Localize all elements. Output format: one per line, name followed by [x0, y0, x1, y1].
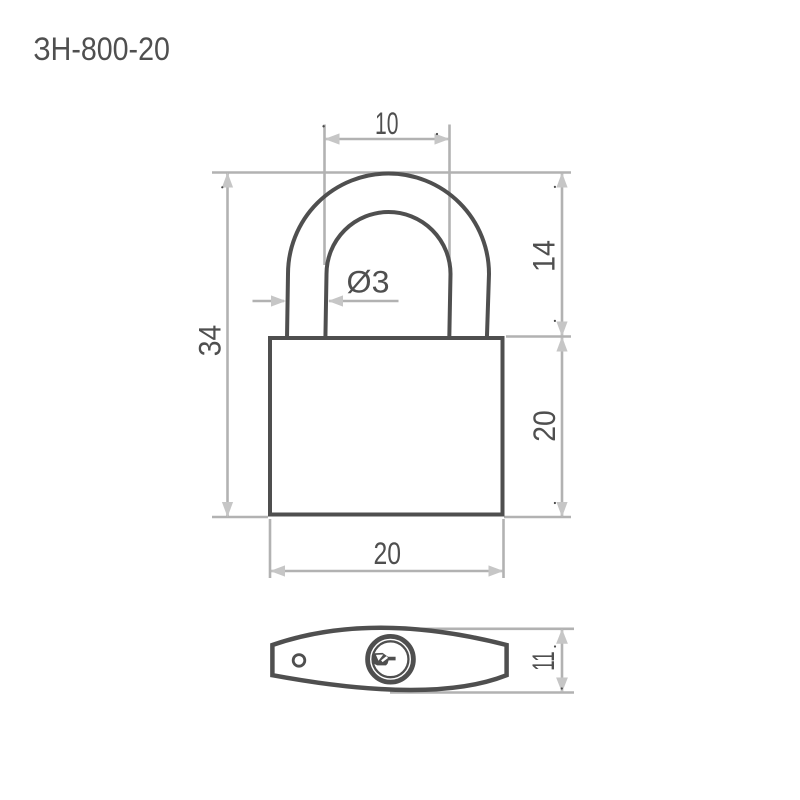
svg-text:Ø3: Ø3	[347, 264, 390, 300]
svg-text:14: 14	[526, 240, 562, 272]
svg-text:ЗН-800-20: ЗН-800-20	[33, 31, 170, 67]
svg-text:20: 20	[526, 410, 562, 442]
svg-text:20: 20	[374, 535, 402, 571]
svg-text:34: 34	[192, 325, 228, 357]
svg-text:11: 11	[525, 651, 561, 671]
svg-text:10: 10	[375, 105, 399, 141]
